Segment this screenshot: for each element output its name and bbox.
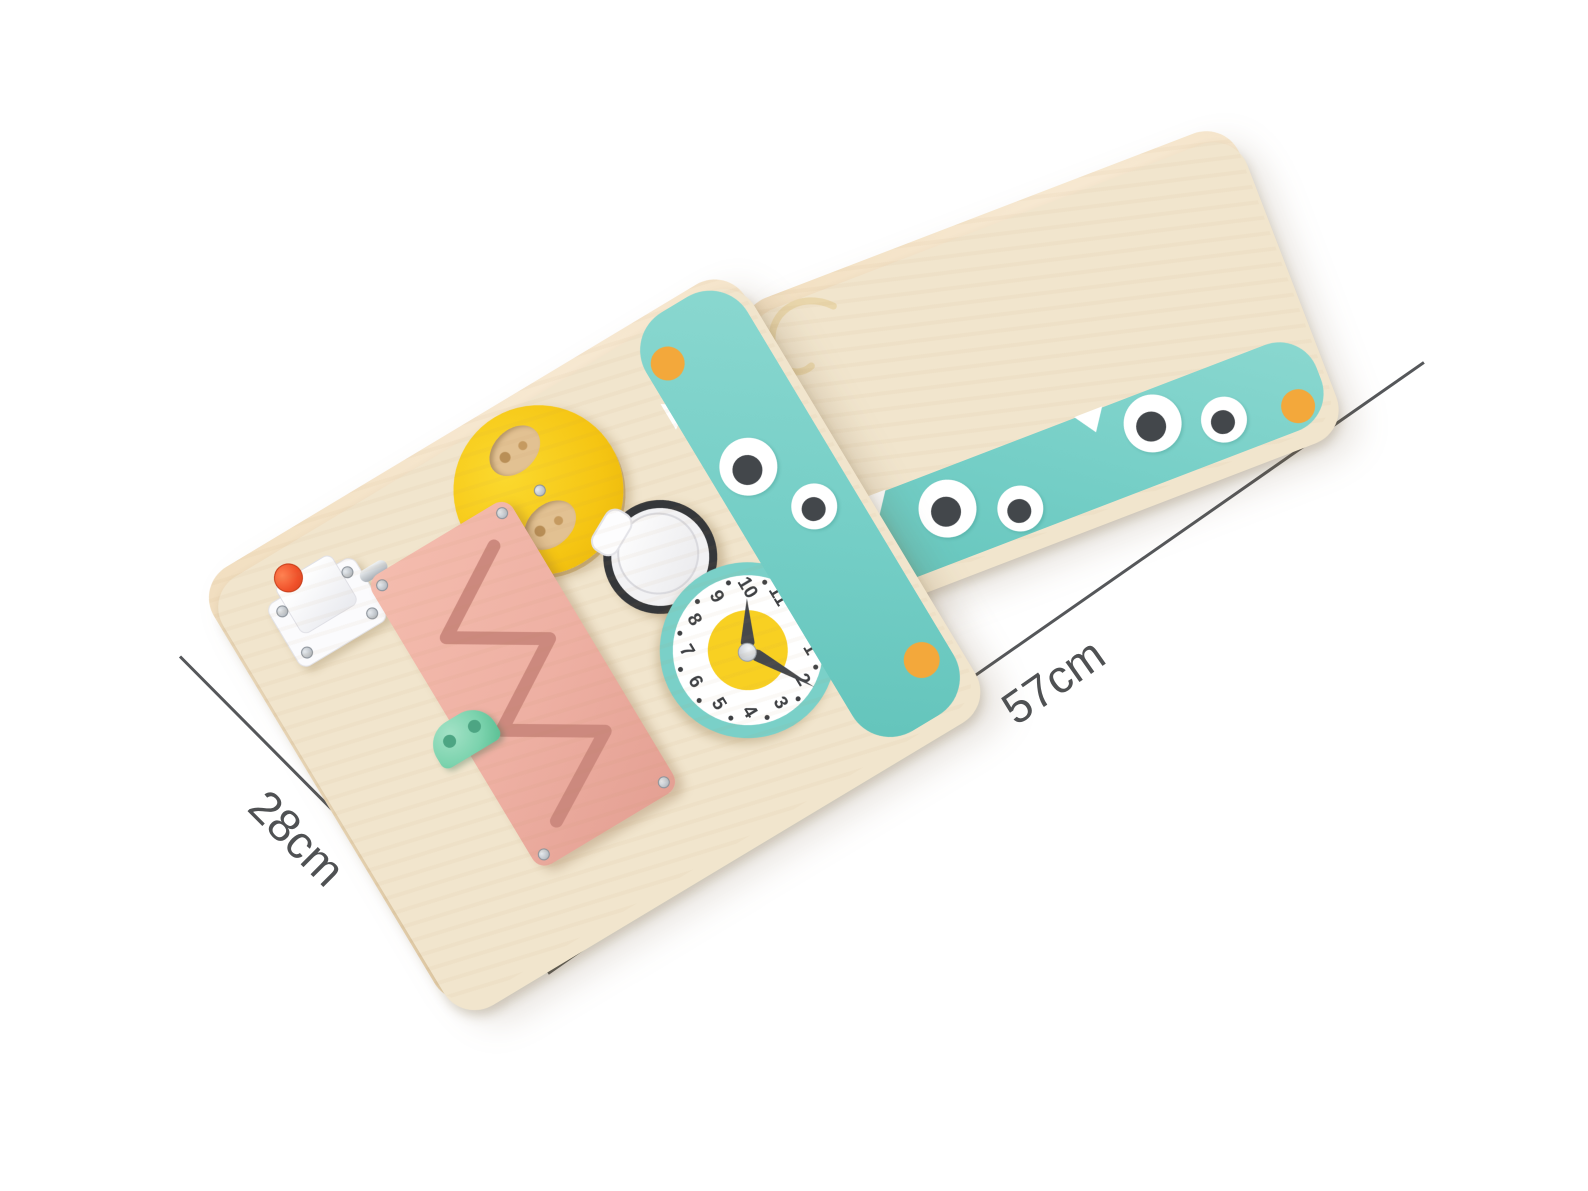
width-dimension-label: 57cm — [991, 627, 1114, 736]
clock-dot — [764, 714, 771, 721]
orange-dot — [1276, 384, 1320, 428]
orange-dot — [897, 635, 946, 684]
screw-icon — [364, 605, 380, 621]
clock-dot — [795, 695, 802, 702]
clock-dot — [727, 715, 734, 722]
googly-eye-icon — [1115, 386, 1190, 461]
clock-dot — [696, 697, 703, 704]
orange-dot — [644, 340, 691, 387]
googly-eye-icon — [1194, 390, 1253, 449]
clock-dot — [725, 579, 732, 586]
clock-dot — [677, 666, 684, 673]
clock-dot — [812, 664, 819, 671]
googly-eye-icon — [709, 427, 789, 507]
peek-hole — [479, 415, 550, 486]
clock-dot — [694, 598, 701, 605]
screw-icon — [299, 644, 315, 660]
busy-board-product-photo: 28cm 57cm — [0, 0, 1588, 1191]
googly-eye-icon — [910, 471, 985, 546]
googly-eye-icon — [991, 479, 1050, 538]
screw-icon — [532, 482, 548, 498]
clock-dot — [761, 579, 768, 586]
clock-dot — [676, 630, 683, 637]
monster-tooth-icon — [1074, 406, 1110, 437]
googly-eye-icon — [783, 475, 846, 538]
push-button-latch[interactable] — [264, 554, 390, 670]
